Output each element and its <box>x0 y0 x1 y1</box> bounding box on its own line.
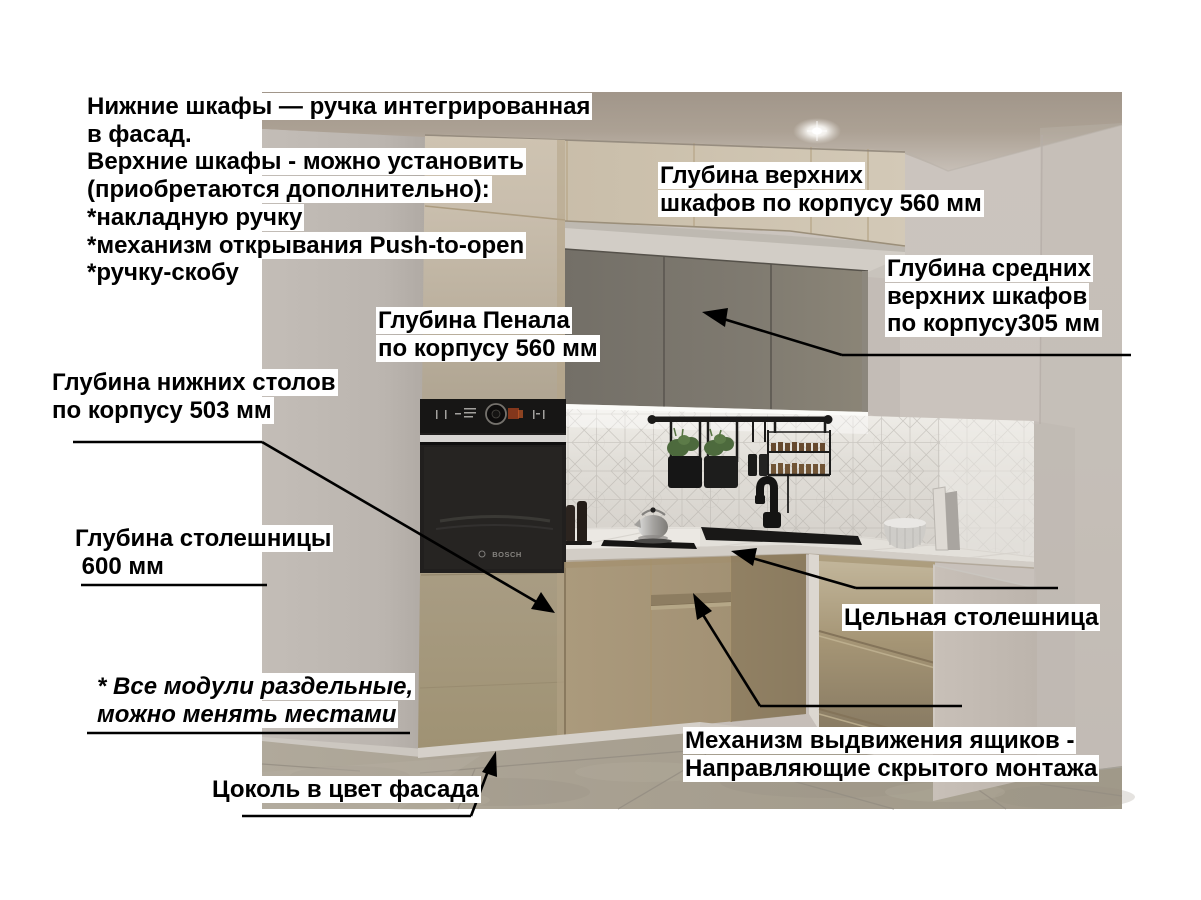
svg-text:BOSCH: BOSCH <box>492 550 522 559</box>
